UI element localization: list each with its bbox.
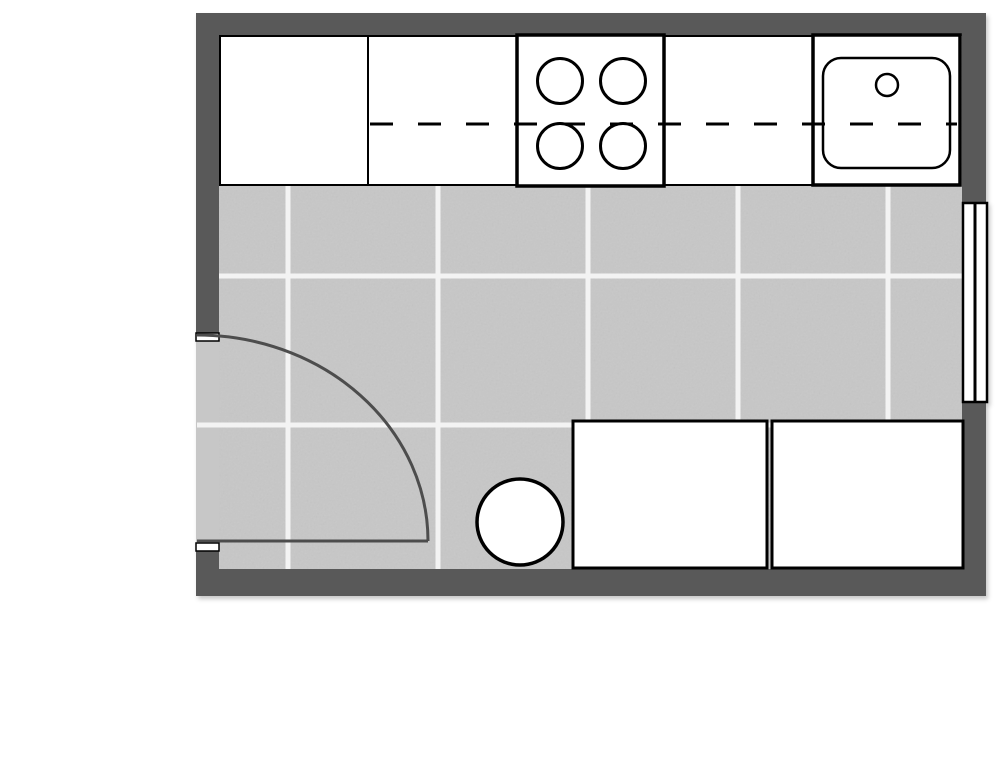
- counter-cabinet-left[interactable]: [368, 36, 517, 185]
- burner: [601, 124, 646, 169]
- burner: [538, 124, 583, 169]
- counter-cabinet-right[interactable]: [664, 36, 813, 185]
- burner: [601, 59, 646, 104]
- faucet-hole: [876, 74, 898, 96]
- round-stool[interactable]: [477, 479, 563, 565]
- page: [0, 0, 1000, 763]
- floor-plan-canvas: [0, 0, 1000, 763]
- door-opening: [196, 337, 219, 545]
- door-jamb: [196, 543, 219, 551]
- cooktop[interactable]: [517, 35, 664, 186]
- base-cabinet-right-1[interactable]: [573, 421, 767, 568]
- base-cabinet-right-2[interactable]: [772, 421, 963, 568]
- burner: [538, 59, 583, 104]
- tall-cabinet[interactable]: [220, 36, 368, 185]
